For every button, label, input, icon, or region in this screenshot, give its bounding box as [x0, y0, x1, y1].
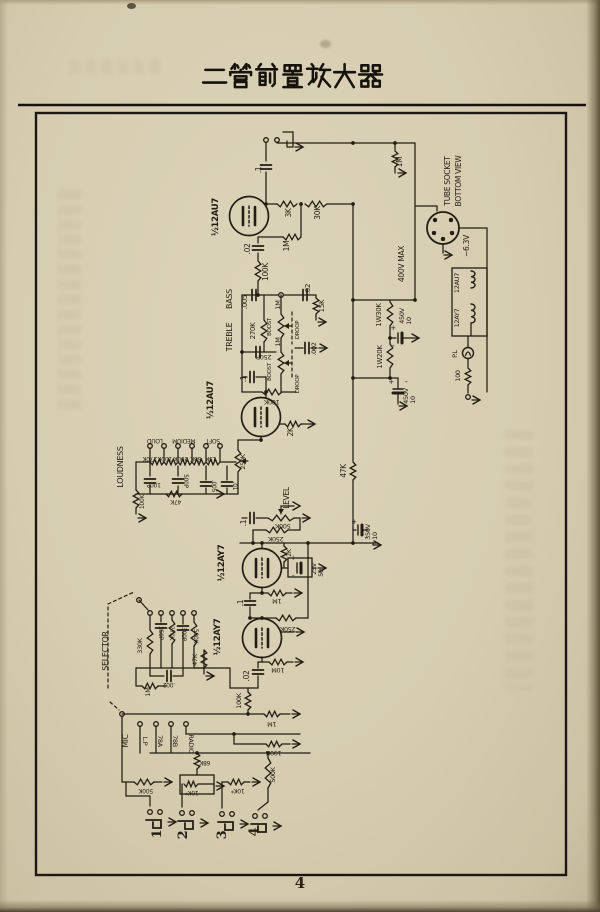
- schematic-label: L.P: [141, 737, 149, 746]
- schematic-label: .1: [239, 519, 248, 526]
- schematic-drawing: .1½12AU73K30K1M.02100K1MBASSTREBLE.005.0…: [0, 0, 600, 912]
- schematic-label: .005: [210, 480, 217, 493]
- title-glyphs: [203, 64, 382, 87]
- schematic-label: 270K: [168, 626, 175, 642]
- schematic-label: .1: [236, 599, 245, 606]
- schematic-label: 15K: [204, 455, 216, 462]
- schematic-label: ~6.3V: [462, 234, 471, 257]
- schematic-label: 2: [176, 831, 191, 840]
- schematic-label: +: [290, 554, 296, 562]
- schematic-label: .005: [241, 295, 249, 309]
- schematic-label: 100K: [139, 494, 146, 510]
- schematic-label: 200K: [173, 455, 189, 462]
- schematic-label: BOOST: [267, 317, 273, 336]
- schematic-label: 1M: [144, 687, 152, 696]
- schematic-label: 78B: [171, 735, 179, 747]
- schematic-label: ½12AY7: [216, 544, 227, 581]
- schematic-label: 250P: [157, 626, 164, 641]
- schematic-label: 10K*: [231, 787, 245, 794]
- schematic-label: 10: [371, 532, 379, 540]
- schematic-label: -: [365, 533, 368, 542]
- schematic-label: SELECTOR: [101, 630, 110, 670]
- schematic-label: MEDIUM: [172, 437, 195, 444]
- schematic-label: 500P: [182, 474, 189, 489]
- schematic-label: 12AU7: [453, 273, 461, 293]
- schematic-label: 10K*: [185, 789, 199, 796]
- schematic-label: 100K: [235, 692, 243, 709]
- schematic-label: .02: [243, 243, 252, 255]
- schematic-label: .01: [231, 482, 238, 491]
- schematic-label: -: [292, 571, 295, 580]
- schematic-label: 100K: [263, 398, 280, 406]
- schematic-label: 100K: [261, 262, 270, 281]
- schematic-label: 12AY7: [453, 308, 461, 327]
- schematic-label: 100: [454, 370, 462, 382]
- schematic-label: 1: [150, 830, 165, 839]
- schematic-label: 78A: [156, 735, 164, 748]
- schematic-label: 500K: [138, 787, 154, 794]
- schematic-label: 500K: [269, 766, 277, 783]
- schematic-label: LEVEL: [282, 486, 291, 509]
- schematic-label: ½12AU7: [205, 381, 216, 419]
- schematic-label: +: [388, 378, 394, 386]
- schematic-label: 250P: [256, 353, 272, 361]
- schematic-label: RADIO: [187, 734, 195, 753]
- schematic-label: .02: [304, 284, 312, 294]
- schematic-label: -: [405, 377, 408, 386]
- schematic-label: 47K: [169, 498, 181, 505]
- schematic-label: 10: [405, 317, 413, 325]
- schematic-label: 500K: [274, 522, 291, 530]
- schematic-label: 270K: [142, 455, 158, 462]
- schematic-label: 1M: [267, 720, 276, 728]
- schematic-label: 100P: [146, 481, 161, 488]
- schematic-label: 1W30K: [375, 303, 383, 327]
- schematic-label: DROOP: [295, 374, 301, 394]
- schematic-label: 1M: [282, 241, 291, 252]
- schematic-label: -: [392, 341, 395, 350]
- schematic-label: LOUDNESS: [116, 446, 125, 488]
- schematic-label: SOFT: [205, 437, 220, 444]
- schematic-label: .1: [254, 166, 263, 173]
- schematic-label: 400V MAX: [397, 246, 406, 282]
- schematic-label: ½12AU7: [210, 198, 221, 236]
- schematic-label: BASS: [225, 289, 234, 309]
- schematic-label: +: [390, 324, 396, 332]
- schematic-label: 100K: [157, 455, 173, 462]
- schematic-label: 30K: [313, 205, 322, 220]
- schematic-label: 10M: [272, 666, 285, 674]
- scan-artifact: [320, 40, 331, 48]
- schematic-label: .002: [310, 342, 318, 355]
- schematic-label: TUBE SOCKET: [443, 156, 452, 207]
- schematic-label: 250K: [239, 453, 247, 470]
- page-edge: [0, 900, 600, 912]
- schematic-label: 47K: [339, 463, 348, 478]
- schematic-label: ½12AY7: [212, 618, 223, 655]
- schematic-label: 68K: [189, 455, 201, 462]
- schematic-label: LOUD: [146, 437, 162, 444]
- schematic-label: TREBLE: [225, 322, 234, 352]
- schematic-label: 1M: [274, 300, 282, 309]
- page-number: 4: [0, 874, 600, 892]
- scan-artifact: [127, 3, 136, 9]
- schematic-label: 250K: [279, 625, 296, 633]
- schematic-label: BOOST: [267, 362, 273, 381]
- schematic-label: 3K: [284, 207, 293, 217]
- schematic-label: 1M: [272, 597, 281, 605]
- schematic-label: 1M: [274, 337, 282, 346]
- schematic-label: 2K: [286, 426, 295, 436]
- schematic-label: MIC: [121, 734, 130, 747]
- schematic-label: 10: [409, 396, 417, 404]
- schematic-label: 4: [247, 827, 262, 836]
- schematic-label: DROOP: [295, 320, 301, 340]
- schematic-label: .02: [242, 670, 251, 682]
- schematic-label: BOTTOM VIEW: [454, 155, 463, 207]
- page-edge: [586, 0, 600, 912]
- schematic-label: 47K: [191, 653, 199, 666]
- schematic-label: 15K: [318, 299, 326, 312]
- schematic-label: 3: [215, 830, 230, 839]
- schematic-label: +: [351, 518, 357, 526]
- schematic-label: 330K: [136, 637, 144, 654]
- schematic-label: P.L: [451, 349, 459, 357]
- schematic-label: 500K: [192, 629, 199, 645]
- schematic-label: .1: [239, 375, 248, 382]
- schematic-label: 1M: [395, 157, 404, 168]
- schematic-label: 100K: [265, 749, 282, 757]
- schematic-label: .002: [162, 681, 175, 688]
- schematic-label: 270K: [249, 322, 257, 339]
- schematic-label: 68K: [198, 759, 210, 766]
- schematic-label: 50: [317, 569, 325, 577]
- scanned-page: 二管前置放大器 .1½12AU73K30K1M.02100K1MBASSTREB…: [0, 0, 600, 912]
- schematic-label: 250K: [267, 535, 284, 543]
- schematic-label: 1W20K: [376, 345, 384, 369]
- schematic-label: 300P: [180, 627, 187, 642]
